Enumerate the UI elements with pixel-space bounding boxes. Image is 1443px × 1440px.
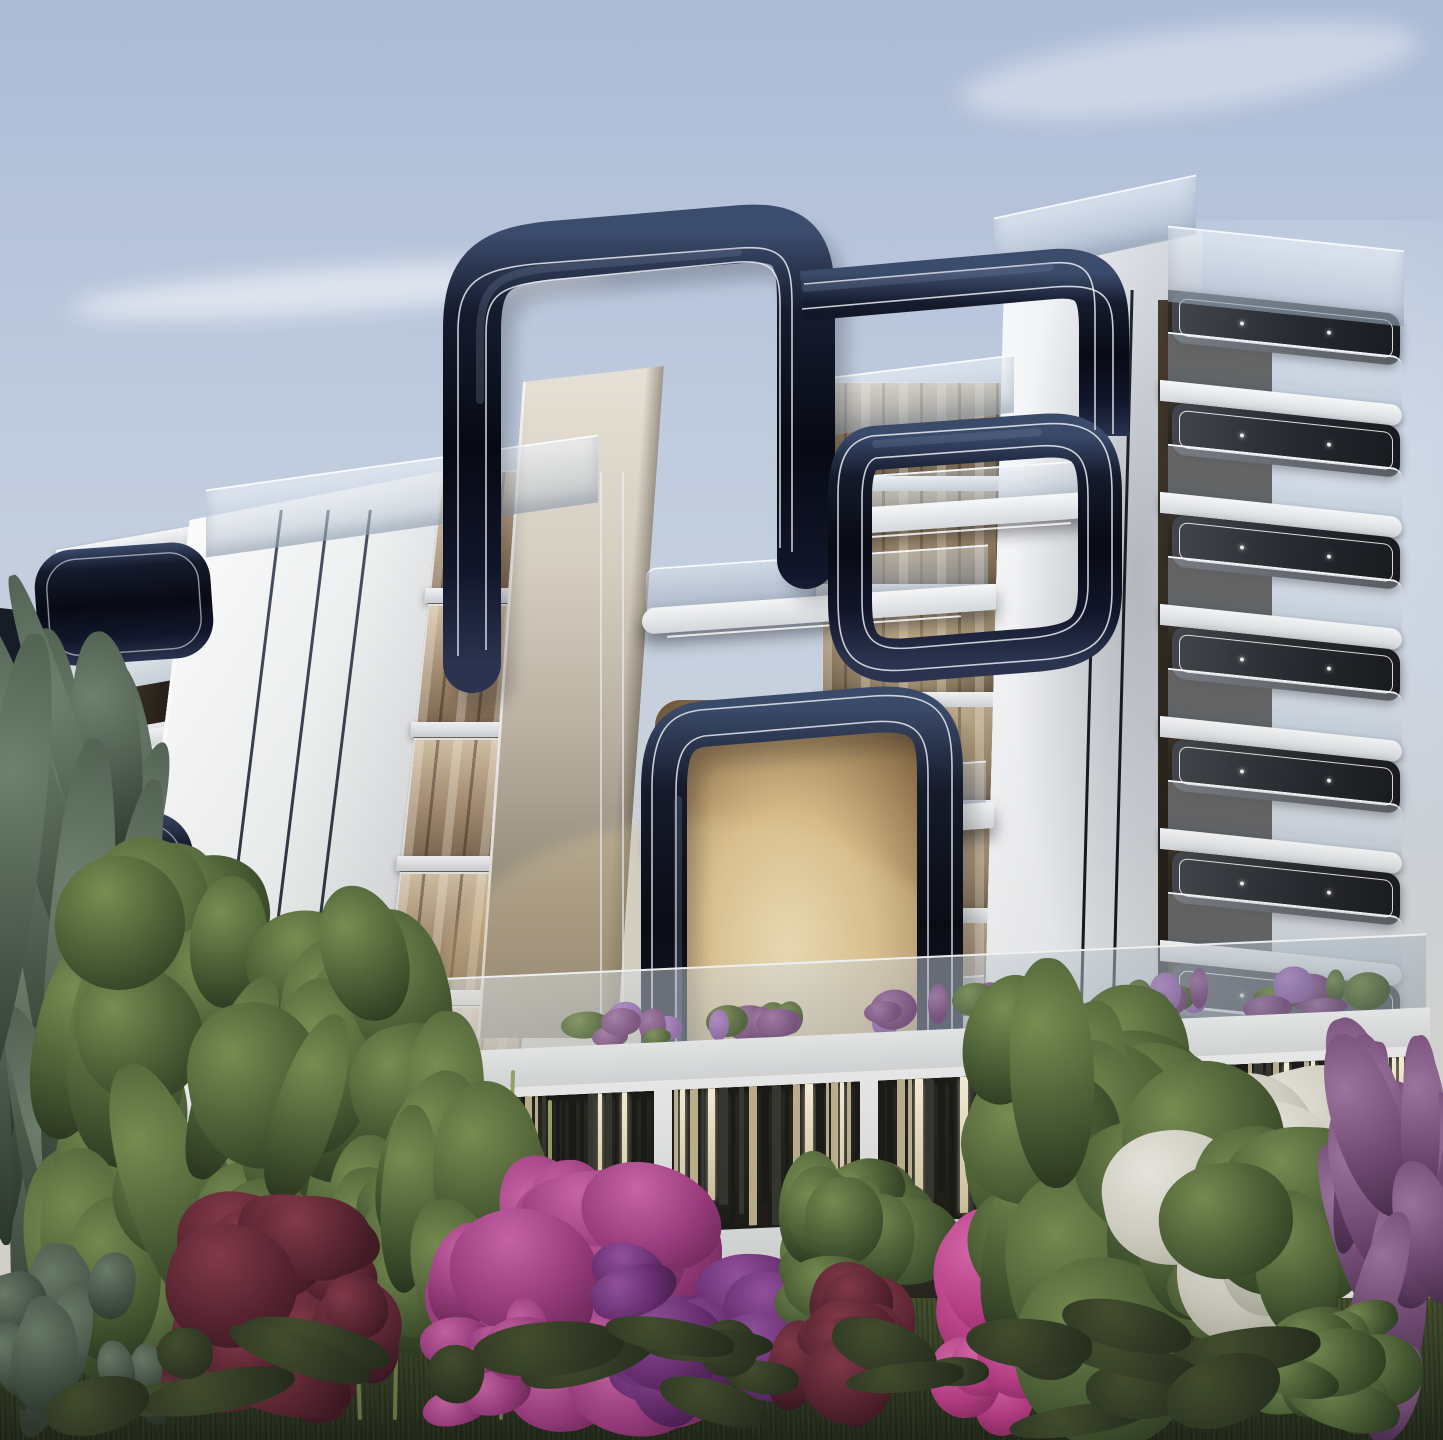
foliage-blob bbox=[39, 1365, 156, 1440]
vegetation-layer bbox=[0, 0, 1443, 1440]
foliage-blob bbox=[157, 1328, 213, 1380]
grass-tufts bbox=[0, 1300, 1443, 1440]
scene-canvas bbox=[0, 0, 1443, 1440]
